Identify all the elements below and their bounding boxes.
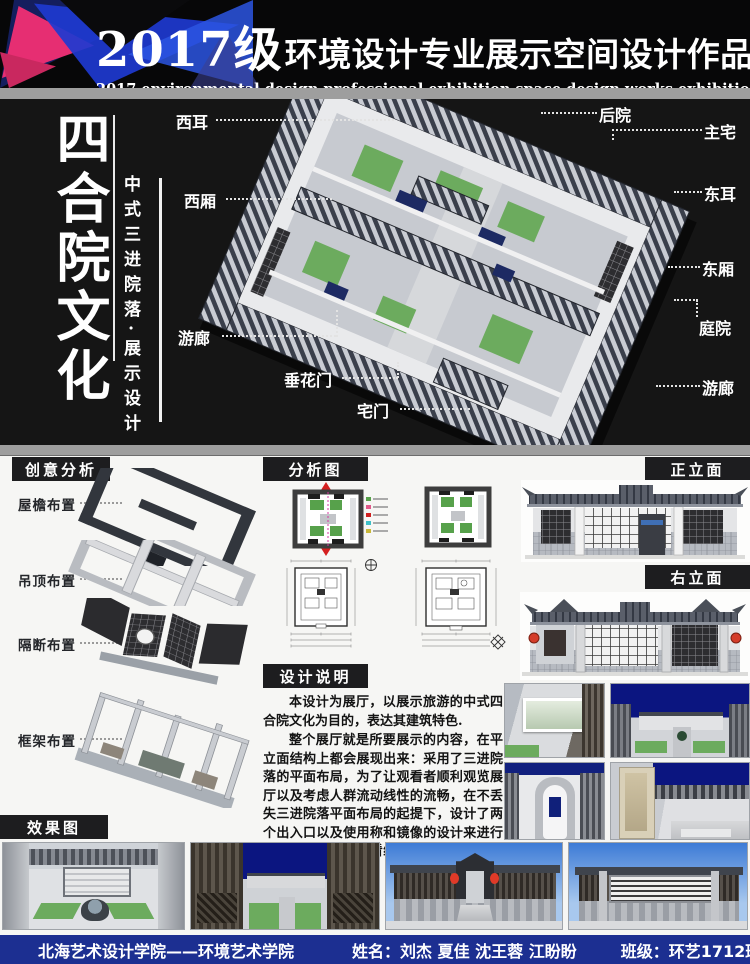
diagram-frame-layout <box>66 692 261 808</box>
label-back-yard: 后院 <box>599 102 631 126</box>
floorplan-cad-right <box>406 556 506 652</box>
leader-line <box>612 129 614 140</box>
leader-line <box>696 300 698 317</box>
leader-line <box>222 335 336 337</box>
leader-line <box>674 299 698 301</box>
section-badge-right-elevation: 右立面 <box>645 565 750 589</box>
floorplan-colored-plain <box>424 486 492 548</box>
leader-line <box>674 191 702 193</box>
left-accent-line <box>159 178 162 422</box>
plan-legend <box>366 497 388 537</box>
lantern-icon <box>529 633 539 643</box>
label-festoon-gate: 垂花门 <box>284 367 332 391</box>
hero-section: 四合院文化 中式三进院落·展示设计 西耳 西厢 游廊 垂花门 宅门 后院 主宅 … <box>0 99 750 445</box>
title-text: 环境设计专业展示空间设计作品展 <box>285 28 750 76</box>
label-west-wing: 西厢 <box>184 188 216 212</box>
render-vase-corridor <box>504 762 605 840</box>
leader-line <box>342 377 398 379</box>
leader-line <box>216 119 394 121</box>
compass-icon <box>364 558 378 572</box>
footer-names: 刘杰 夏佳 沈王蓉 江盼盼 <box>400 938 577 962</box>
label-main-house: 主宅 <box>704 119 736 143</box>
label-courtyard: 庭院 <box>699 315 731 339</box>
lantern-icon <box>490 873 499 884</box>
label-gallery-right: 游廊 <box>702 375 734 399</box>
design-notes-paragraph: 本设计为展厅，以展示旅游的中式四合院文化为目的，表达其建筑特色. <box>263 694 503 731</box>
leader-line <box>400 408 470 410</box>
elevation-right-image <box>520 592 750 680</box>
render-night-corridor <box>190 842 380 930</box>
label-gallery-left: 游廊 <box>178 325 210 349</box>
header: 2017级 环境设计专业展示空间设计作品展 2017 environmental… <box>0 0 750 88</box>
footer-names-label: 姓名： <box>352 938 400 962</box>
footer-class-label: 班级： <box>621 938 669 962</box>
header-title-block: 2017级 环境设计专业展示空间设计作品展 2017 environmental… <box>96 10 746 88</box>
leader-line <box>612 129 702 131</box>
lantern-icon <box>450 873 459 884</box>
title-year: 2017级 <box>96 10 283 80</box>
footer-school: 北海艺术设计学院——环境艺术学院 <box>38 938 294 962</box>
compass-icon <box>491 635 505 649</box>
poster-board: 2017级 环境设计专业展示空间设计作品展 2017 environmental… <box>0 0 750 964</box>
render-night-courtyard <box>610 683 750 758</box>
section-badge-effects: 效果图 <box>0 815 108 839</box>
lantern-icon <box>731 633 741 643</box>
leader-line <box>336 310 338 337</box>
diagram-partition-layout <box>66 598 261 690</box>
vertical-divider <box>113 115 115 361</box>
creative-item-label: 屋檐布置 <box>18 494 76 514</box>
render-day-courtyard <box>2 842 185 930</box>
poster-sub-title: 中式三进院落·展示设计 <box>118 175 143 439</box>
section-badge-analysis: 分析图 <box>263 457 368 481</box>
render-facade-day <box>568 842 748 930</box>
label-east-ear: 东耳 <box>704 181 736 205</box>
courtyard-3d-model-illustration <box>172 99 712 445</box>
floorplan-colored-flow <box>292 480 364 558</box>
leader-line <box>668 266 700 268</box>
leader-line <box>226 198 332 200</box>
label-house-gate: 宅门 <box>357 398 389 422</box>
page-title: 2017级 环境设计专业展示空间设计作品展 <box>96 10 746 80</box>
elevation-front-image <box>521 480 750 562</box>
footer-class: 环艺1712班 <box>669 938 750 962</box>
floorplan-cad-left <box>281 556 361 652</box>
section-badge-design-notes: 设计说明 <box>263 664 368 688</box>
footer-bar: 北海艺术设计学院——环境艺术学院 姓名： 刘杰 夏佳 沈王蓉 江盼盼 班级： 环… <box>0 935 750 964</box>
poster-main-title: 四合院文化 <box>40 111 119 406</box>
leader-line <box>656 385 700 387</box>
section-badge-front-elevation: 正立面 <box>645 457 750 481</box>
render-exhibit-room <box>504 683 605 758</box>
leader-line <box>541 112 597 114</box>
divider-bar-middle <box>0 445 750 456</box>
leader-line <box>397 362 399 378</box>
label-east-wing: 东厢 <box>702 256 734 280</box>
label-west-ear: 西耳 <box>176 109 208 133</box>
diagram-ceiling-layout <box>62 540 262 606</box>
render-entrance-gate <box>385 842 563 930</box>
render-scroll-corridor <box>610 762 750 840</box>
title-subtitle-en: 2017 environmental design professional e… <box>96 81 733 88</box>
